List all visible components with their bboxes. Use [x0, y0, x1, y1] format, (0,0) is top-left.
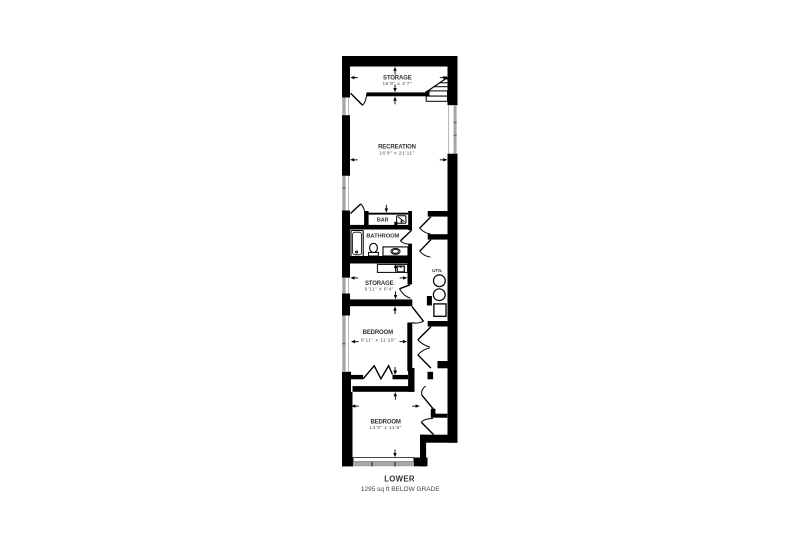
- svg-text:RECREATION: RECREATION: [378, 145, 416, 151]
- svg-text:BEDROOM: BEDROOM: [363, 330, 393, 336]
- svg-text:13'3" x 11'6": 13'3" x 11'6": [369, 425, 401, 431]
- svg-text:BAR: BAR: [377, 218, 389, 224]
- svg-text:BEDROOM: BEDROOM: [370, 420, 400, 426]
- svg-text:STORAGE: STORAGE: [365, 281, 394, 287]
- svg-text:16'8" x 4'7": 16'8" x 4'7": [382, 81, 412, 87]
- svg-text:1295 sq ft BELOW GRADE: 1295 sq ft BELOW GRADE: [361, 486, 440, 493]
- svg-text:9'11" x 6'4": 9'11" x 6'4": [365, 286, 394, 292]
- svg-text:9'11" x 11'10": 9'11" x 11'10": [361, 338, 396, 344]
- svg-text:BATHROOM: BATHROOM: [366, 234, 399, 240]
- svg-text:UTIL: UTIL: [432, 268, 442, 273]
- svg-text:16'8" x 21'11": 16'8" x 21'11": [379, 151, 415, 157]
- svg-text:LOWER: LOWER: [384, 475, 415, 484]
- svg-text:STORAGE: STORAGE: [383, 76, 412, 82]
